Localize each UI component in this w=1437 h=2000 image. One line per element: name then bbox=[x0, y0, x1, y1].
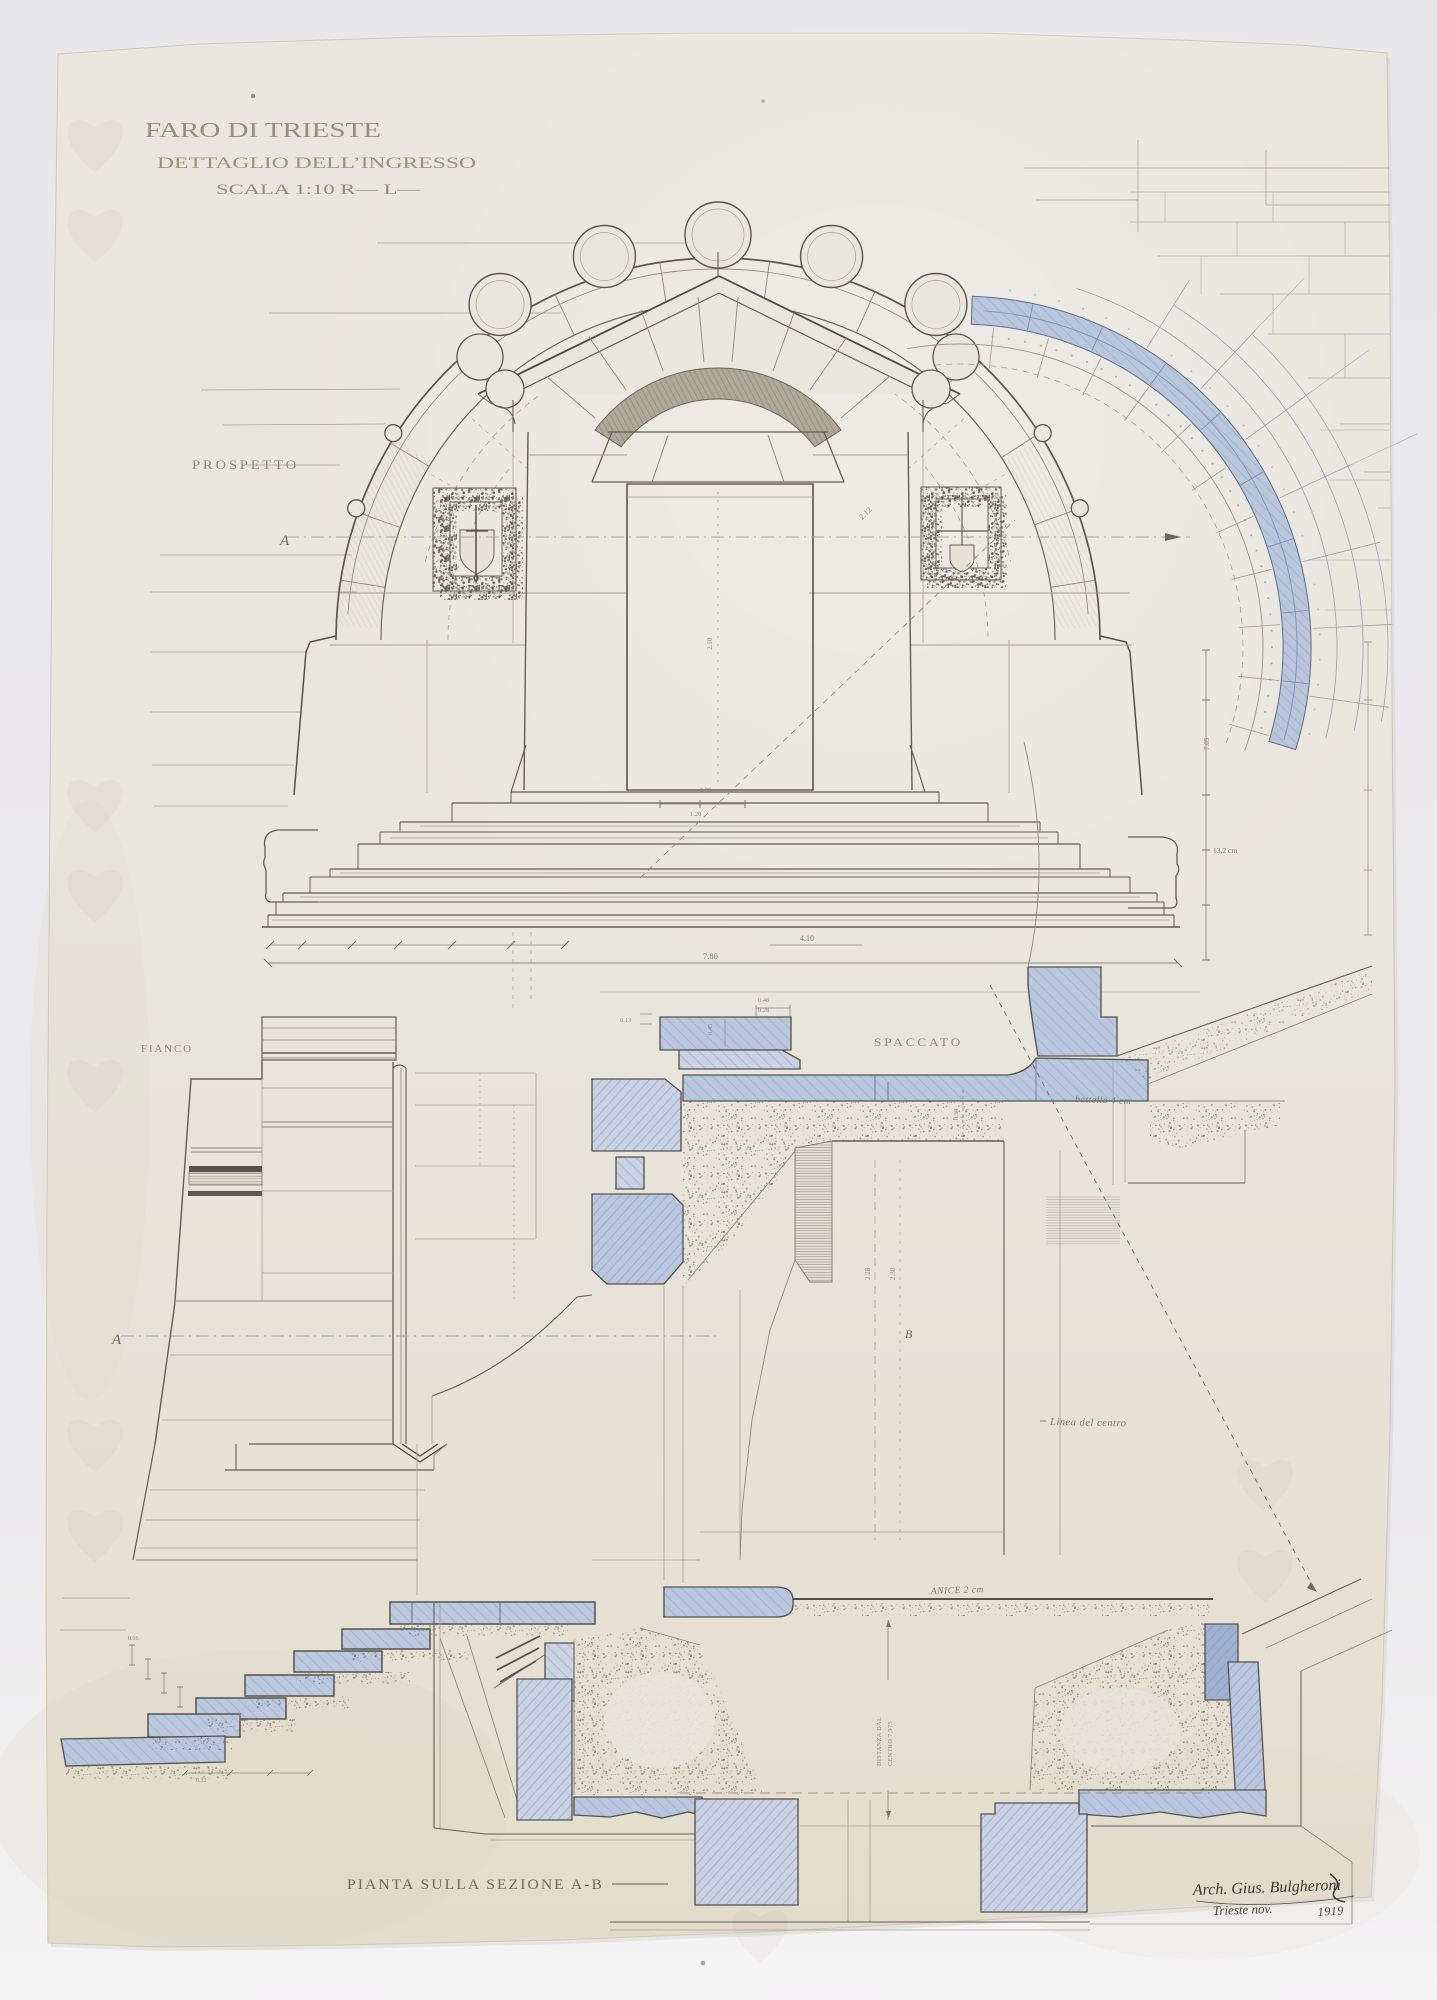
svg-text:0.13: 0.13 bbox=[620, 1017, 631, 1024]
svg-text:SCALA 1:10 R— L—: SCALA 1:10 R— L— bbox=[216, 182, 421, 198]
svg-text:CENTRO 7,975: CENTRO 7,975 bbox=[887, 1721, 894, 1766]
svg-text:DISTANZA DAL: DISTANZA DAL bbox=[876, 1717, 883, 1766]
svg-text:PIANTA SULLA SEZIONE A-B: PIANTA SULLA SEZIONE A-B bbox=[347, 1877, 604, 1893]
svg-text:Linea del centro: Linea del centro bbox=[1049, 1417, 1127, 1429]
svg-text:0.30: 0.30 bbox=[953, 1109, 960, 1120]
svg-text:0.46: 0.46 bbox=[758, 997, 770, 1004]
svg-text:DETTAGLIO DELL’INGRESSO: DETTAGLIO DELL’INGRESSO bbox=[157, 155, 476, 172]
svg-text:battello 4 cm: battello 4 cm bbox=[1075, 1095, 1131, 1107]
svg-text:4.10: 4.10 bbox=[800, 934, 814, 943]
svg-text:0.28: 0.28 bbox=[758, 1007, 769, 1014]
svg-text:FIANCO: FIANCO bbox=[141, 1043, 193, 1055]
svg-text:B: B bbox=[905, 1327, 913, 1341]
svg-text:0.95: 0.95 bbox=[700, 787, 711, 794]
svg-text:7.05: 7.05 bbox=[1203, 737, 1211, 750]
svg-text:2.28: 2.28 bbox=[864, 1267, 872, 1280]
svg-text:PROSPETTO: PROSPETTO bbox=[192, 457, 299, 472]
svg-text:0.16: 0.16 bbox=[128, 1636, 139, 1642]
svg-text:FARO DI TRIESTE: FARO DI TRIESTE bbox=[145, 118, 381, 142]
svg-text:A: A bbox=[279, 533, 290, 549]
svg-text:1.20: 1.20 bbox=[690, 811, 701, 818]
svg-text:13,2 cm: 13,2 cm bbox=[1213, 846, 1237, 855]
svg-text:SPACCATO: SPACCATO bbox=[874, 1035, 963, 1049]
svg-text:ANICE 2 cm: ANICE 2 cm bbox=[930, 1585, 984, 1597]
svg-text:7.80: 7.80 bbox=[703, 951, 718, 961]
svg-text:0.32: 0.32 bbox=[196, 1778, 207, 1784]
svg-text:2.10: 2.10 bbox=[706, 637, 714, 650]
svg-text:2.30: 2.30 bbox=[889, 1267, 897, 1280]
svg-text:1919: 1919 bbox=[1317, 1903, 1344, 1919]
svg-text:0.45: 0.45 bbox=[707, 1024, 714, 1035]
svg-text:A: A bbox=[111, 1332, 122, 1348]
